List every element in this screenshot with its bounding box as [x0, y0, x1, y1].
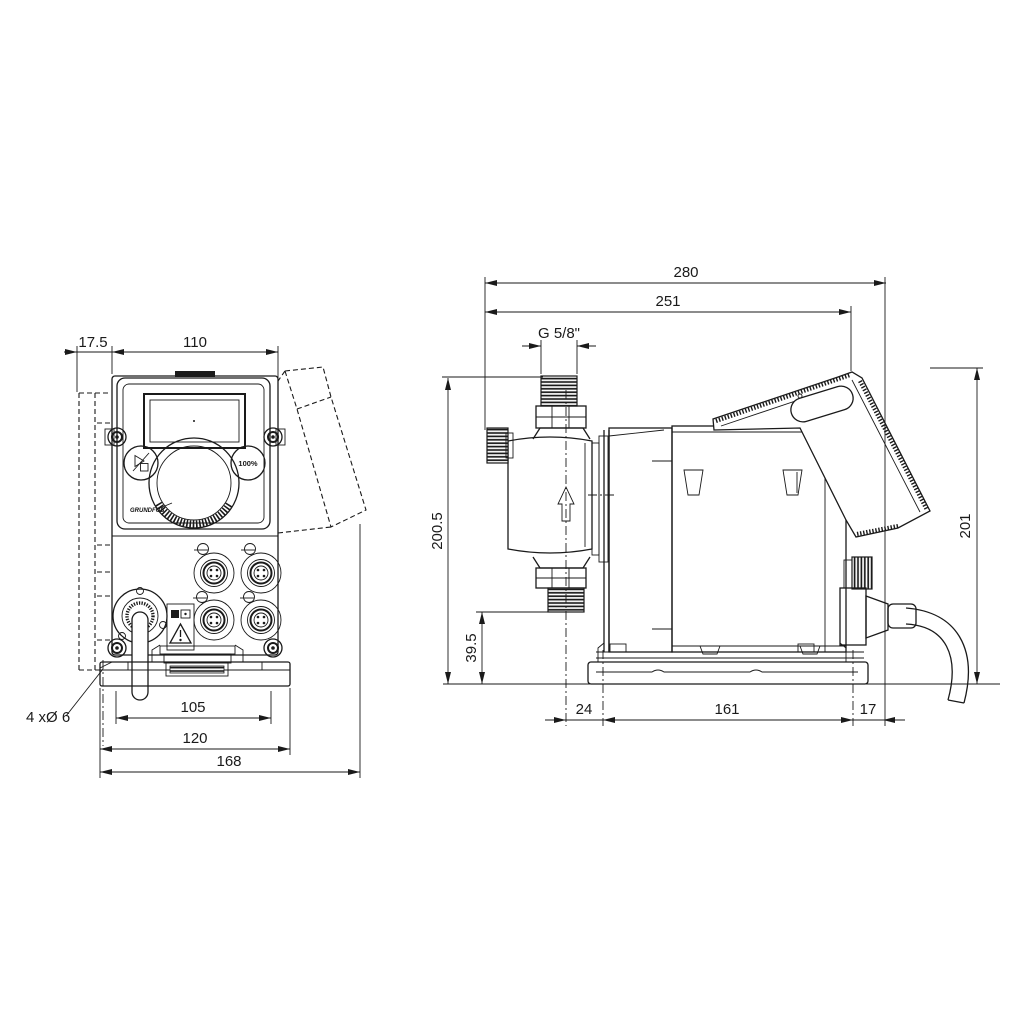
top-thread-connector [541, 376, 577, 406]
side-view: 280 251 G 5/8" 200.5 39.5 201 24 161 17 [429, 264, 1000, 726]
connector[interactable] [241, 600, 281, 640]
dosing-head [487, 376, 608, 612]
hood-dashed-front [278, 367, 366, 533]
pump-housing-side [588, 428, 672, 652]
dim-length-to-cover: 251 [655, 293, 680, 310]
connector[interactable] [241, 553, 281, 593]
mounting-foot-side [588, 643, 868, 684]
dim-height-connection: 200.5 [429, 512, 446, 550]
hole-note: 4 xØ 6 [26, 709, 70, 726]
dim-hole-pitch: 105 [180, 699, 205, 716]
dim-height-overall: 201 [957, 513, 974, 538]
dim-overall-length: 280 [673, 264, 698, 281]
dim-width: 110 [183, 334, 207, 351]
connector[interactable] [194, 600, 234, 640]
dim-thread: G 5/8" [538, 325, 580, 342]
start-stop-icon [133, 453, 149, 471]
dim-plate-width: 120 [182, 730, 207, 747]
cover-clip [175, 371, 215, 377]
rear-gland [844, 557, 872, 589]
m12-connectors [193, 544, 281, 641]
front-view: 100% GRUNDFOS [26, 334, 366, 778]
percent-button-label: 100% [238, 459, 258, 468]
cable-gland-assembly [840, 588, 968, 703]
connector[interactable] [194, 553, 234, 593]
dimensional-drawing-svg: 100% GRUNDFOS [0, 0, 1024, 1024]
warning-triangle-icon [170, 624, 191, 643]
start-stop-button[interactable] [124, 446, 158, 480]
dim-overall-width: 168 [216, 753, 241, 770]
dim-valve-height: 39.5 [463, 633, 480, 662]
control-panel: 100% GRUNDFOS [117, 371, 270, 529]
technical-drawing: 100% GRUNDFOS [0, 0, 1024, 1024]
front-dimensions: 17.5 110 105 120 168 4 xØ 6 [26, 334, 360, 778]
dim-offset: 17.5 [78, 334, 107, 351]
hood-side [713, 372, 930, 537]
click-wheel[interactable] [149, 438, 239, 528]
grundfos-logo: GRUNDFOS [130, 508, 164, 514]
dim-base-offset-rear: 17 [860, 701, 877, 718]
display [144, 394, 245, 448]
dim-base-length: 161 [714, 701, 739, 718]
dim-base-offset-front: 24 [576, 701, 593, 718]
power-cable [132, 612, 148, 700]
warning-label [167, 604, 194, 650]
mounting-clips [684, 470, 802, 495]
percent-button[interactable]: 100% [231, 446, 265, 480]
wall-plate-dashed [79, 393, 112, 670]
deaeration-valve-knob[interactable] [487, 428, 508, 463]
